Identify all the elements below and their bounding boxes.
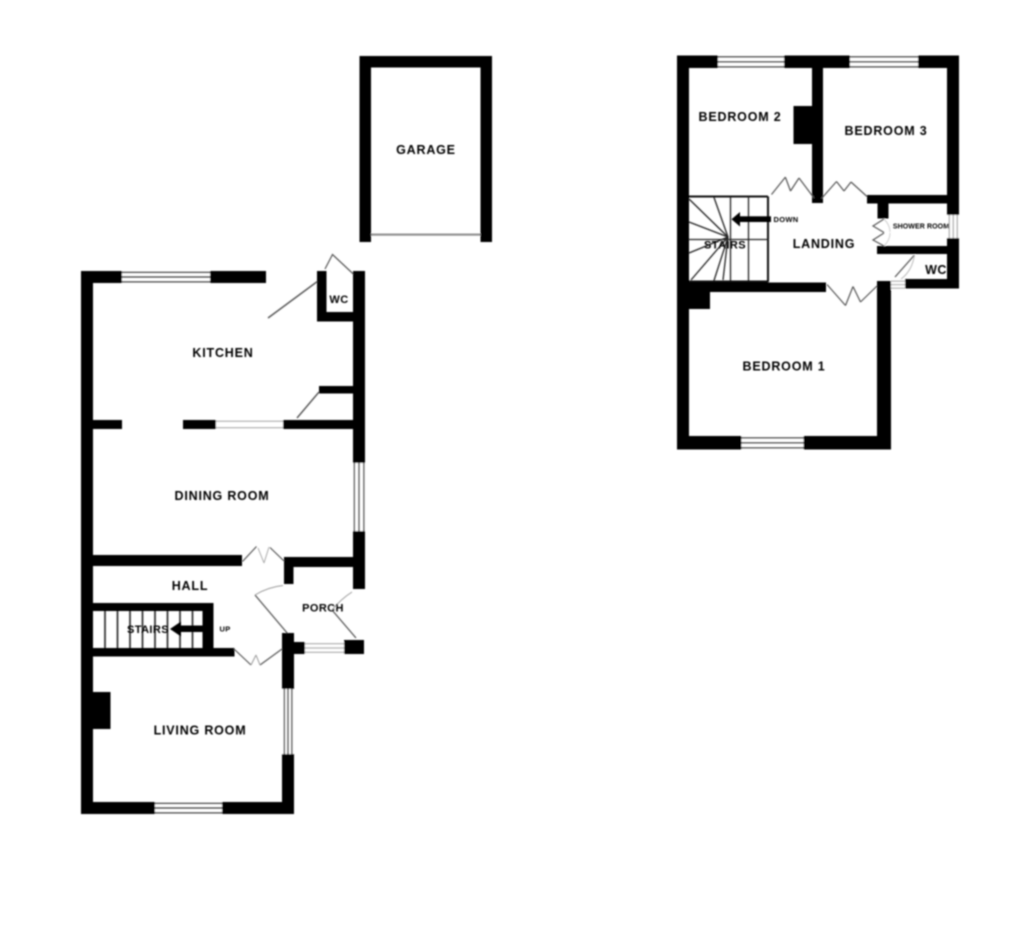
svg-text:LIVING ROOM: LIVING ROOM: [154, 724, 247, 738]
svg-text:WC: WC: [925, 263, 947, 277]
svg-text:DINING ROOM: DINING ROOM: [175, 489, 270, 503]
svg-text:BEDROOM 2: BEDROOM 2: [699, 110, 782, 124]
svg-text:DOWN: DOWN: [774, 215, 799, 224]
svg-text:BEDROOM 1: BEDROOM 1: [743, 360, 826, 374]
svg-text:PORCH: PORCH: [302, 603, 344, 615]
svg-text:BEDROOM 3: BEDROOM 3: [845, 124, 928, 138]
svg-text:SHOWER ROOM: SHOWER ROOM: [893, 224, 949, 231]
svg-text:GARAGE: GARAGE: [396, 143, 456, 157]
svg-text:LANDING: LANDING: [793, 237, 856, 251]
svg-text:HALL: HALL: [172, 579, 209, 593]
svg-text:KITCHEN: KITCHEN: [192, 346, 253, 360]
svg-text:STAIRS: STAIRS: [127, 624, 169, 636]
svg-text:UP: UP: [219, 625, 230, 634]
svg-text:WC: WC: [329, 294, 348, 306]
svg-text:STAIRS: STAIRS: [704, 240, 746, 252]
